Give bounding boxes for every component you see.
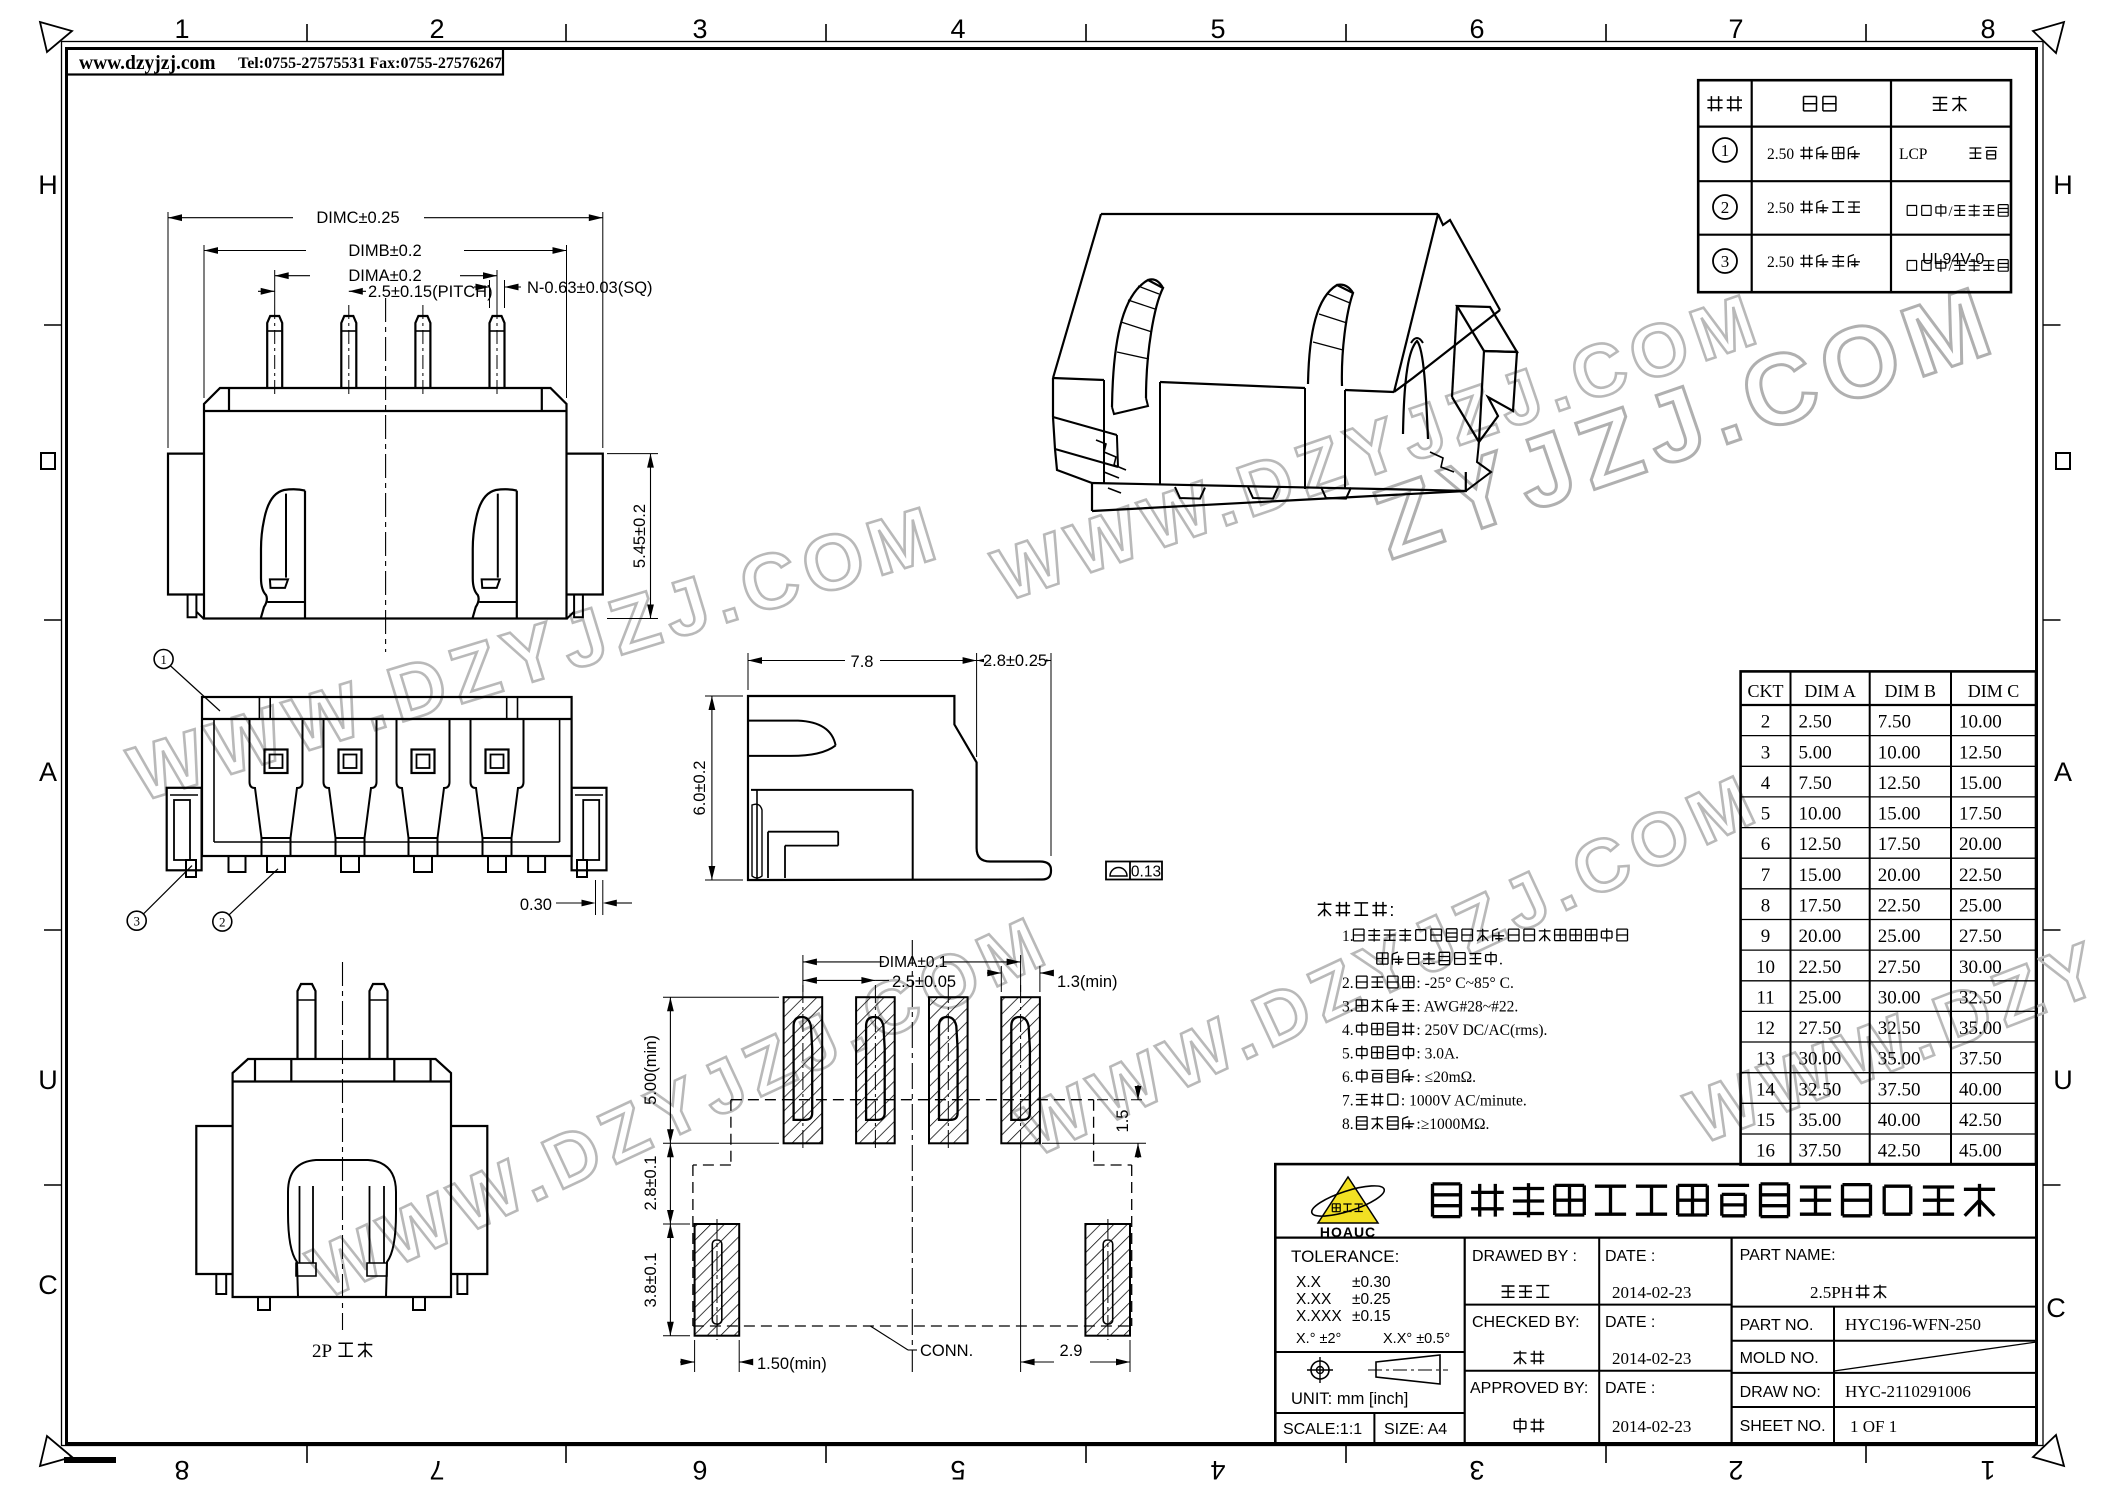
svg-text:32.50: 32.50 <box>1878 1018 1921 1039</box>
svg-text:12.50: 12.50 <box>1878 773 1921 794</box>
svg-text:35.00: 35.00 <box>1799 1110 1842 1131</box>
svg-text:DRAWED BY :: DRAWED BY : <box>1472 1248 1577 1265</box>
svg-text:25.00: 25.00 <box>1959 896 2002 917</box>
svg-text:X.X° ±0.5°: X.X° ±0.5° <box>1383 1331 1450 1347</box>
svg-text:37.50: 37.50 <box>1799 1141 1842 1162</box>
svg-text:1.50(min): 1.50(min) <box>757 1355 827 1373</box>
svg-text:CHECKED BY:: CHECKED BY: <box>1472 1314 1580 1331</box>
svg-text:27.50: 27.50 <box>1799 1018 1842 1039</box>
svg-text:C: C <box>2046 1293 2066 1323</box>
svg-text:27.50: 27.50 <box>1878 957 1921 978</box>
svg-text:2.50: 2.50 <box>1767 146 1794 163</box>
svg-text:1: 1 <box>160 652 167 667</box>
svg-text:35.00: 35.00 <box>1959 1018 2002 1039</box>
svg-text:3: 3 <box>692 14 707 44</box>
svg-text:DIMC±0.25: DIMC±0.25 <box>316 209 399 227</box>
svg-text:SCALE:1:1: SCALE:1:1 <box>1283 1421 1362 1438</box>
svg-text:: 3.0A.: : 3.0A. <box>1416 1046 1459 1063</box>
svg-text:7.50: 7.50 <box>1878 712 1911 733</box>
svg-text:2.8±0.1: 2.8±0.1 <box>642 1156 660 1211</box>
svg-text:2014-02-23: 2014-02-23 <box>1612 1283 1691 1302</box>
svg-text:4.: 4. <box>1342 1022 1354 1039</box>
svg-text:DRAW NO:: DRAW NO: <box>1740 1384 1821 1401</box>
svg-text:3: 3 <box>1761 742 1771 763</box>
svg-text:2P: 2P <box>312 1341 332 1362</box>
svg-text:HYC-2110291006: HYC-2110291006 <box>1845 1382 1971 1401</box>
svg-text:6.0±0.2: 6.0±0.2 <box>691 761 709 816</box>
svg-text:12.50: 12.50 <box>1959 742 2002 763</box>
svg-text:X.XX: X.XX <box>1296 1291 1332 1308</box>
svg-text:20.00: 20.00 <box>1799 926 1842 947</box>
svg-text:1: 1 <box>174 14 189 44</box>
svg-text:7.50: 7.50 <box>1799 773 1832 794</box>
svg-text:0.30: 0.30 <box>520 896 552 914</box>
svg-text:UNIT: mm [inch]: UNIT: mm [inch] <box>1291 1390 1408 1408</box>
svg-text:16: 16 <box>1756 1141 1775 1162</box>
svg-text:UL94V-0: UL94V-0 <box>1922 251 1984 268</box>
svg-text:9: 9 <box>1761 926 1771 947</box>
svg-text:X.° ±2°: X.° ±2° <box>1296 1331 1341 1347</box>
svg-text:5.00: 5.00 <box>1799 742 1832 763</box>
svg-text:: 250V DC/AC(rms).: : 250V DC/AC(rms). <box>1416 1022 1547 1039</box>
svg-text:U: U <box>38 1065 58 1095</box>
svg-text:DIMB±0.2: DIMB±0.2 <box>348 242 421 260</box>
svg-text:X.X: X.X <box>1296 1274 1322 1291</box>
svg-text:LCP: LCP <box>1899 146 1927 163</box>
svg-text:15.00: 15.00 <box>1799 865 1842 886</box>
svg-text:11: 11 <box>1756 987 1774 1008</box>
svg-text:1.: 1. <box>1342 928 1354 945</box>
svg-text:7.: 7. <box>1342 1093 1354 1110</box>
svg-text:15.00: 15.00 <box>1878 804 1921 825</box>
svg-text:DIM B: DIM B <box>1885 681 1937 701</box>
svg-text:15: 15 <box>1756 1110 1775 1131</box>
svg-text:: ≤20mΩ.: : ≤20mΩ. <box>1416 1069 1476 1086</box>
svg-text:6.: 6. <box>1342 1069 1354 1086</box>
svg-text:10: 10 <box>1756 957 1775 978</box>
svg-text:42.50: 42.50 <box>1959 1110 2002 1131</box>
svg-text:6: 6 <box>1761 834 1771 855</box>
svg-text:7: 7 <box>429 1455 444 1485</box>
svg-text:: -25° C~85° C.: : -25° C~85° C. <box>1416 975 1513 992</box>
svg-text:2.50: 2.50 <box>1767 254 1794 271</box>
svg-text:4: 4 <box>1761 773 1771 794</box>
svg-text:2.9: 2.9 <box>1060 1342 1083 1360</box>
svg-text:13: 13 <box>1756 1049 1775 1070</box>
svg-text:3: 3 <box>133 914 140 929</box>
svg-text:U: U <box>2053 1065 2073 1095</box>
svg-text:DATE :: DATE : <box>1605 1380 1655 1397</box>
svg-text:2: 2 <box>1721 198 1730 217</box>
svg-text:2.5±0.15(PITCH): 2.5±0.15(PITCH) <box>368 283 493 301</box>
svg-text:5.: 5. <box>1342 1046 1354 1063</box>
svg-text:APPROVED BY:: APPROVED BY: <box>1470 1380 1588 1397</box>
svg-text:DIMA±0.1: DIMA±0.1 <box>879 954 948 971</box>
svg-text:4: 4 <box>950 14 965 44</box>
svg-text:37.50: 37.50 <box>1959 1049 2002 1070</box>
svg-text:2.: 2. <box>1342 975 1354 992</box>
svg-text:2.50: 2.50 <box>1767 200 1794 217</box>
svg-text:1: 1 <box>1980 1455 1995 1485</box>
svg-text:1.3(min): 1.3(min) <box>1057 973 1118 991</box>
svg-text:12: 12 <box>1756 1018 1775 1039</box>
svg-text:8: 8 <box>1761 896 1771 917</box>
svg-text:22.50: 22.50 <box>1959 865 2002 886</box>
svg-text:3: 3 <box>1721 252 1730 271</box>
svg-text:32.50: 32.50 <box>1959 987 2002 1008</box>
svg-text:3.8±0.1: 3.8±0.1 <box>642 1253 660 1308</box>
svg-text:5: 5 <box>1761 804 1771 825</box>
svg-text:DATE :: DATE : <box>1605 1248 1655 1265</box>
svg-text:A: A <box>2054 757 2072 787</box>
svg-text:10.00: 10.00 <box>1878 742 1921 763</box>
svg-text:5: 5 <box>1210 14 1225 44</box>
svg-text:1 OF 1: 1 OF 1 <box>1850 1417 1897 1436</box>
svg-text:: AWG#28~#22.: : AWG#28~#22. <box>1416 999 1518 1016</box>
svg-text:40.00: 40.00 <box>1959 1079 2002 1100</box>
svg-text:22.50: 22.50 <box>1878 896 1921 917</box>
svg-text:25.00: 25.00 <box>1799 987 1842 1008</box>
svg-text:17.50: 17.50 <box>1878 834 1921 855</box>
svg-text:2.50: 2.50 <box>1799 712 1832 733</box>
svg-text:5: 5 <box>950 1455 965 1485</box>
svg-text:37.50: 37.50 <box>1878 1079 1921 1100</box>
svg-text:: 1000V AC/minute.: : 1000V AC/minute. <box>1401 1093 1527 1110</box>
svg-text:CONN.: CONN. <box>920 1342 973 1360</box>
svg-text:32.50: 32.50 <box>1799 1079 1842 1100</box>
svg-text:1.5: 1.5 <box>1114 1110 1132 1133</box>
svg-text:6: 6 <box>1469 14 1484 44</box>
svg-text:14: 14 <box>1756 1079 1776 1100</box>
svg-text:2014-02-23: 2014-02-23 <box>1612 1417 1691 1436</box>
svg-text:7.8: 7.8 <box>851 653 874 671</box>
svg-text:CKT: CKT <box>1748 681 1784 701</box>
svg-text:DIM A: DIM A <box>1804 681 1856 701</box>
svg-text:15.00: 15.00 <box>1959 773 2002 794</box>
svg-text:22.50: 22.50 <box>1799 957 1842 978</box>
svg-text:2: 2 <box>1761 712 1771 733</box>
svg-text:20.00: 20.00 <box>1878 865 1921 886</box>
svg-text:SIZE: A4: SIZE: A4 <box>1384 1421 1447 1438</box>
svg-text:7: 7 <box>1761 865 1771 886</box>
svg-text:±0.15: ±0.15 <box>1352 1308 1391 1325</box>
svg-text:PART NO.: PART NO. <box>1740 1317 1814 1334</box>
svg-text:5.00(min): 5.00(min) <box>642 1035 660 1105</box>
svg-text:PART NAME:: PART NAME: <box>1740 1247 1836 1264</box>
svg-text:N-0.63±0.03(SQ): N-0.63±0.03(SQ) <box>527 279 653 297</box>
svg-text:C: C <box>38 1270 58 1300</box>
svg-text:H: H <box>2053 170 2073 200</box>
svg-text:HYC196-WFN-250: HYC196-WFN-250 <box>1845 1315 1981 1334</box>
svg-text:2.8±0.25: 2.8±0.25 <box>983 652 1047 670</box>
svg-text:MOLD NO.: MOLD NO. <box>1740 1350 1819 1367</box>
svg-text:2.5±0.05: 2.5±0.05 <box>892 973 956 991</box>
svg-text:8: 8 <box>174 1455 189 1485</box>
svg-text:42.50: 42.50 <box>1878 1141 1921 1162</box>
svg-text:45.00: 45.00 <box>1959 1141 2002 1162</box>
svg-text:12.50: 12.50 <box>1799 834 1842 855</box>
svg-text:H: H <box>38 170 58 200</box>
svg-text:.: . <box>1499 952 1503 969</box>
svg-text:2014-02-23: 2014-02-23 <box>1612 1349 1691 1368</box>
svg-text:1: 1 <box>1721 141 1730 160</box>
svg-text:40.00: 40.00 <box>1878 1110 1921 1131</box>
svg-text:X.XXX: X.XXX <box>1296 1308 1342 1325</box>
svg-text:2: 2 <box>219 915 226 930</box>
svg-text:www.dzyjzj.com: www.dzyjzj.com <box>79 53 215 74</box>
svg-text:±0.30: ±0.30 <box>1352 1274 1391 1291</box>
svg-text:10.00: 10.00 <box>1959 712 2002 733</box>
svg-text:2: 2 <box>1728 1455 1743 1485</box>
svg-text:DIM C: DIM C <box>1968 681 2020 701</box>
svg-text:17.50: 17.50 <box>1799 896 1842 917</box>
svg-text:±0.25: ±0.25 <box>1352 1291 1391 1308</box>
svg-text:7: 7 <box>1728 14 1743 44</box>
svg-text:30.00: 30.00 <box>1878 987 1921 1008</box>
svg-text::≥1000MΩ.: :≥1000MΩ. <box>1416 1116 1489 1133</box>
svg-text:6: 6 <box>692 1455 707 1485</box>
svg-text:TOLERANCE:: TOLERANCE: <box>1291 1247 1399 1266</box>
svg-text:30.00: 30.00 <box>1959 957 2002 978</box>
svg-text:10.00: 10.00 <box>1799 804 1842 825</box>
svg-text:8: 8 <box>1980 14 1995 44</box>
svg-text:30.00: 30.00 <box>1799 1049 1842 1070</box>
svg-text:25.00: 25.00 <box>1878 926 1921 947</box>
svg-text:2: 2 <box>429 14 444 44</box>
svg-text:17.50: 17.50 <box>1959 804 2002 825</box>
svg-text:8.: 8. <box>1342 1116 1354 1133</box>
svg-text:20.00: 20.00 <box>1959 834 2002 855</box>
svg-text:4: 4 <box>1210 1455 1225 1485</box>
svg-text:A: A <box>39 757 57 787</box>
svg-text::: : <box>1389 900 1394 920</box>
svg-text:5.45±0.2: 5.45±0.2 <box>631 504 649 568</box>
svg-text:SHEET NO.: SHEET NO. <box>1740 1418 1826 1435</box>
svg-text:0.13: 0.13 <box>1131 864 1161 881</box>
svg-text:Tel:0755-27575531 Fax:0755-27: Tel:0755-27575531 Fax:0755-27576267 <box>238 55 502 72</box>
svg-text:2.5PH: 2.5PH <box>1810 1283 1853 1302</box>
svg-text:35.00: 35.00 <box>1878 1049 1921 1070</box>
svg-text:DATE :: DATE : <box>1605 1314 1655 1331</box>
svg-text:3.: 3. <box>1342 999 1354 1016</box>
svg-text:3: 3 <box>1469 1455 1484 1485</box>
svg-text:HOAUC: HOAUC <box>1320 1224 1376 1240</box>
svg-text:27.50: 27.50 <box>1959 926 2002 947</box>
